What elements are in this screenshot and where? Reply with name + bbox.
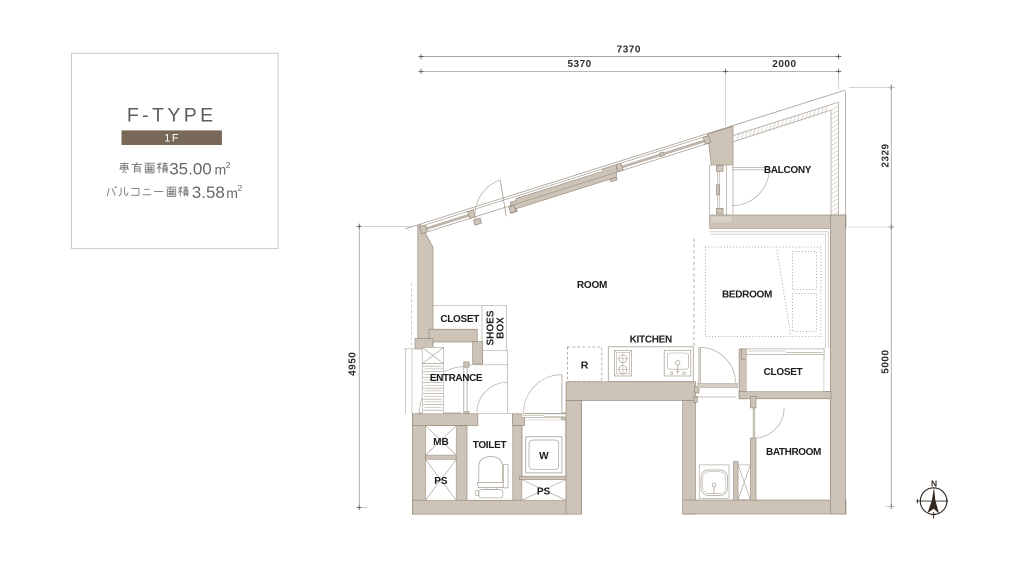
svg-text:4950: 4950	[348, 352, 359, 376]
svg-text:m: m	[226, 185, 238, 201]
svg-text:TOILET: TOILET	[473, 440, 507, 451]
svg-text:BOX: BOX	[496, 317, 507, 339]
svg-text:2: 2	[238, 183, 243, 193]
svg-text:N: N	[931, 479, 937, 489]
svg-text:m: m	[215, 161, 227, 177]
svg-text:2: 2	[226, 160, 231, 170]
svg-text:R: R	[581, 360, 589, 372]
svg-text:2329: 2329	[881, 143, 892, 167]
svg-text:PS: PS	[537, 486, 551, 497]
svg-text:W: W	[539, 451, 549, 462]
svg-text:ENTRANCE: ENTRANCE	[430, 373, 483, 384]
svg-text:BATHROOM: BATHROOM	[766, 447, 821, 458]
svg-text:BEDROOM: BEDROOM	[722, 290, 772, 301]
svg-text:5000: 5000	[881, 349, 892, 373]
svg-text:KITCHEN: KITCHEN	[630, 335, 672, 346]
svg-text:35.00: 35.00	[169, 159, 212, 178]
svg-text:CLOSET: CLOSET	[764, 367, 803, 378]
svg-text:F-TYPE: F-TYPE	[127, 104, 217, 126]
svg-text:BALCONY: BALCONY	[764, 165, 812, 176]
svg-text:2000: 2000	[772, 59, 796, 70]
svg-text:7370: 7370	[617, 45, 641, 56]
svg-text:ROOM: ROOM	[577, 280, 607, 291]
svg-text:PS: PS	[434, 476, 448, 487]
svg-text:3.58: 3.58	[192, 183, 225, 202]
svg-text:MB: MB	[433, 437, 449, 448]
svg-text:5370: 5370	[567, 59, 591, 70]
svg-text:1F: 1F	[164, 133, 180, 145]
svg-text:CLOSET: CLOSET	[440, 314, 479, 325]
